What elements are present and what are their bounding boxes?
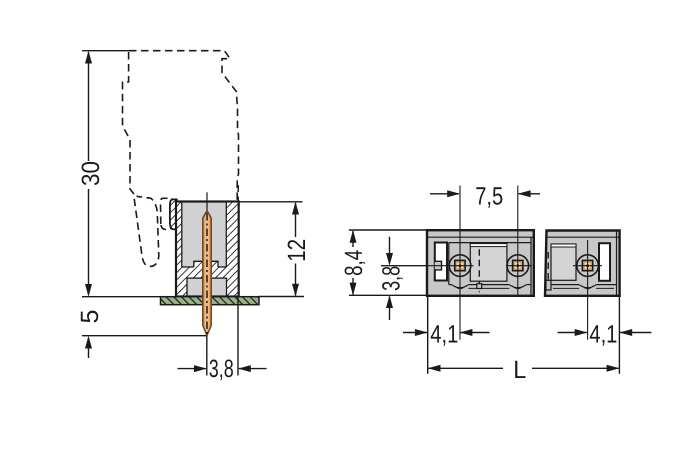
svg-text:3,8: 3,8 <box>377 266 405 291</box>
svg-text:4,1: 4,1 <box>430 321 458 349</box>
svg-text:12: 12 <box>283 239 311 262</box>
svg-text:8,4: 8,4 <box>340 250 368 276</box>
svg-text:3,8: 3,8 <box>209 355 234 383</box>
svg-text:5: 5 <box>76 310 104 324</box>
svg-text:7,5: 7,5 <box>475 182 503 210</box>
svg-text:L: L <box>513 356 526 384</box>
svg-text:30: 30 <box>77 161 105 186</box>
svg-text:4,1: 4,1 <box>589 321 617 349</box>
